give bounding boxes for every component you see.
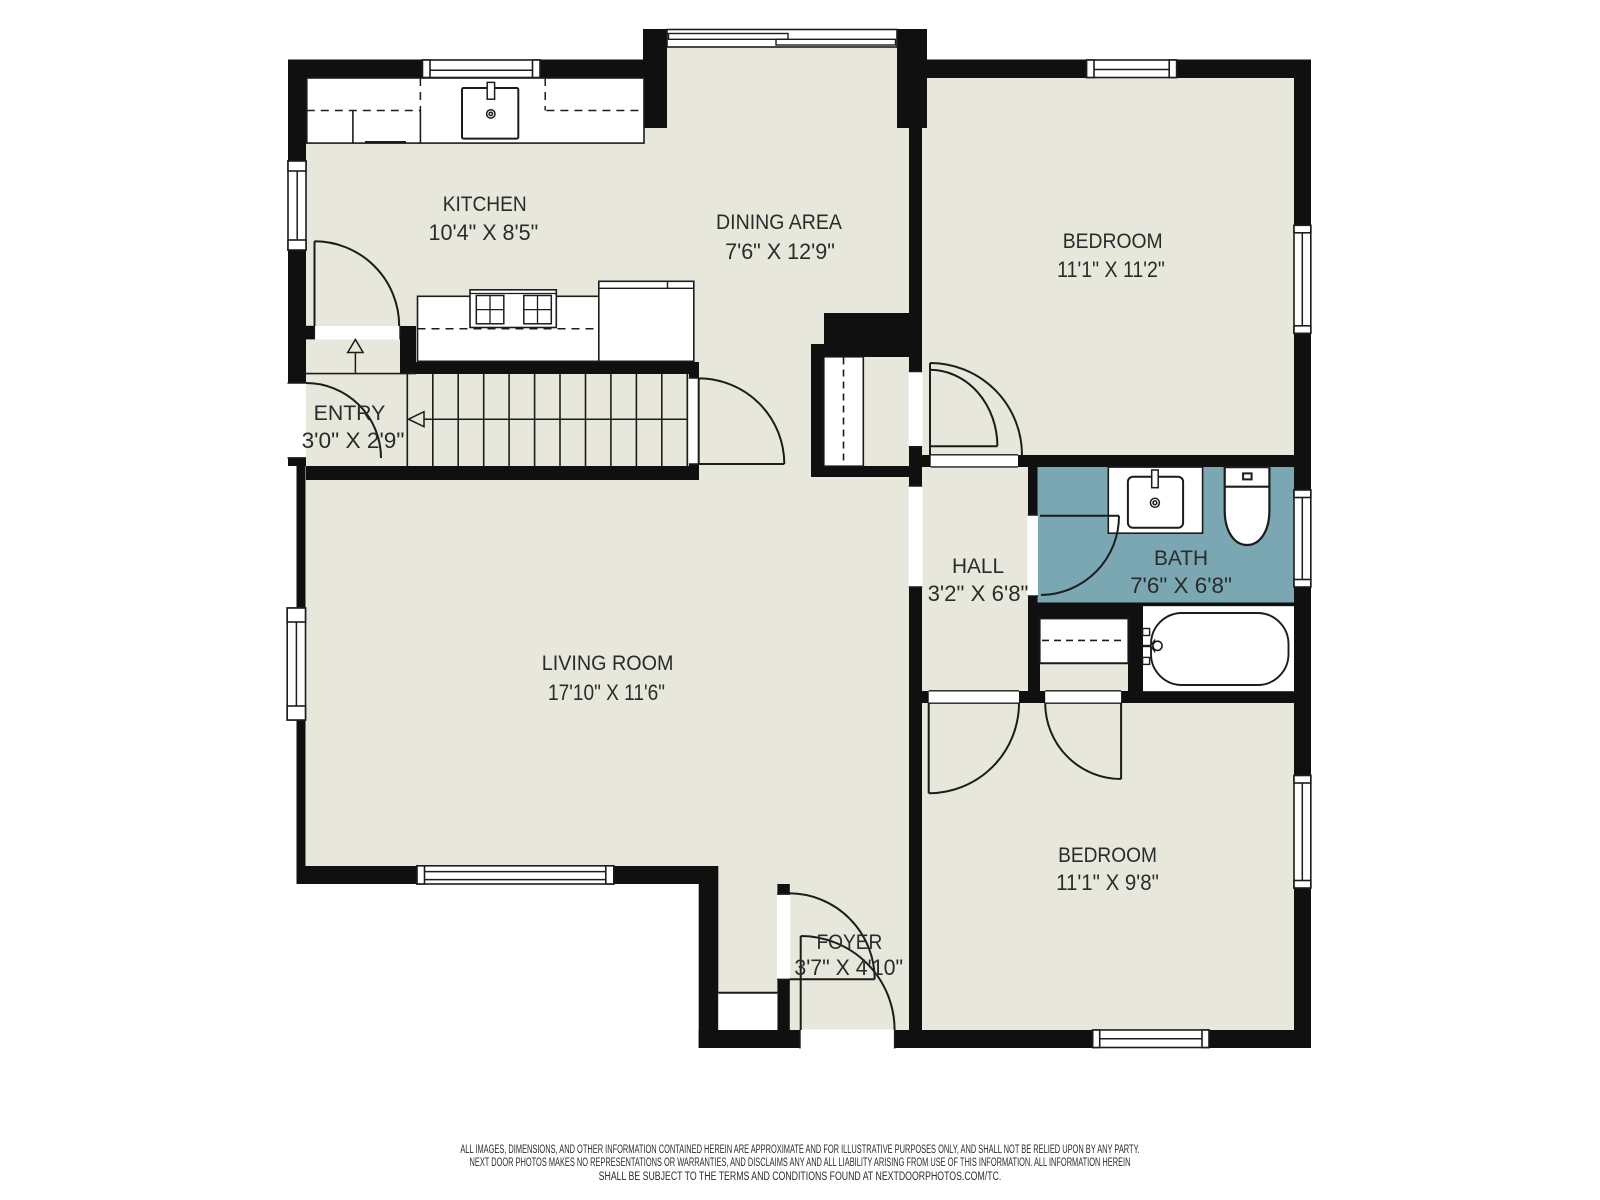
svg-text:KITCHEN: KITCHEN xyxy=(443,193,527,216)
svg-text:SHALL BE SUBJECT TO THE TERMS: SHALL BE SUBJECT TO THE TERMS AND CONDIT… xyxy=(599,1170,1002,1184)
svg-text:HALL: HALL xyxy=(952,555,1004,578)
svg-text:ALL IMAGES, DIMENSIONS, AND OT: ALL IMAGES, DIMENSIONS, AND OTHER INFORM… xyxy=(460,1143,1139,1156)
svg-text:LIVING ROOM: LIVING ROOM xyxy=(542,651,674,675)
svg-text:ENTRY: ENTRY xyxy=(314,401,386,425)
svg-text:11'1" X 11'2": 11'1" X 11'2" xyxy=(1057,258,1165,282)
svg-text:NEXT DOOR PHOTOS MAKES NO REPR: NEXT DOOR PHOTOS MAKES NO REPRESENTATION… xyxy=(470,1156,1131,1169)
svg-text:7'6" X 6'8": 7'6" X 6'8" xyxy=(1130,573,1232,598)
svg-text:3'0" X 2'9": 3'0" X 2'9" xyxy=(302,428,405,453)
svg-text:10'4" X 8'5": 10'4" X 8'5" xyxy=(429,220,539,245)
svg-text:DINING AREA: DINING AREA xyxy=(716,210,842,234)
svg-text:3'7" X 4'10": 3'7" X 4'10" xyxy=(794,955,903,980)
svg-text:BEDROOM: BEDROOM xyxy=(1063,229,1163,253)
svg-text:3'2" X 6'8": 3'2" X 6'8" xyxy=(928,581,1029,606)
svg-text:BEDROOM: BEDROOM xyxy=(1058,844,1157,867)
svg-text:11'1" X 9'8": 11'1" X 9'8" xyxy=(1056,870,1159,895)
svg-text:FOYER: FOYER xyxy=(816,931,882,954)
svg-text:17'10" X 11'6": 17'10" X 11'6" xyxy=(548,681,665,706)
svg-text:BATH: BATH xyxy=(1154,547,1208,570)
svg-text:7'6" X 12'9": 7'6" X 12'9" xyxy=(725,239,835,264)
